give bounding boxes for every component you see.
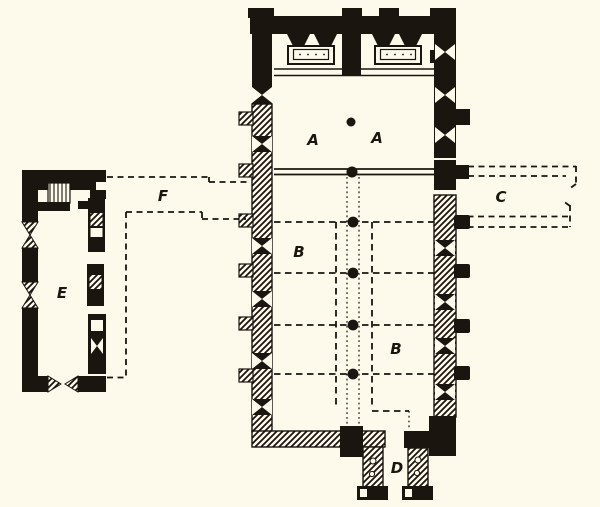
arcade-column-dots [348,217,359,380]
plan-canvas: A A D [0,0,600,507]
annexe-east-piers [78,198,106,374]
porch: D [357,447,433,500]
label-area-e: E [57,284,68,302]
altar-left [288,46,334,64]
altar-right [375,46,421,64]
dashed-outline-c [457,166,576,227]
column-dot [347,167,358,178]
dashed-path-f [107,177,250,378]
annexe-building: E [22,170,106,392]
label-area-f: F [158,187,169,205]
label-area-a-right: A [370,129,383,147]
southeast-corner [429,416,456,456]
label-area-a-left: A [306,131,319,149]
floor-plan-svg: A A D [0,0,600,507]
south-wall [252,426,432,457]
east-wall [429,16,470,456]
label-area-b-lower: B [390,340,401,358]
nave-area: B B [274,177,434,430]
column-dot [347,118,356,127]
chancel-area: A A [274,118,434,178]
west-wall [239,16,272,432]
label-area-b-upper: B [293,243,304,261]
label-area-c: C [495,188,506,206]
west-buttresses [239,112,253,382]
label-area-d: D [391,459,403,477]
stair-feature [48,183,70,203]
north-chapels [248,8,456,76]
